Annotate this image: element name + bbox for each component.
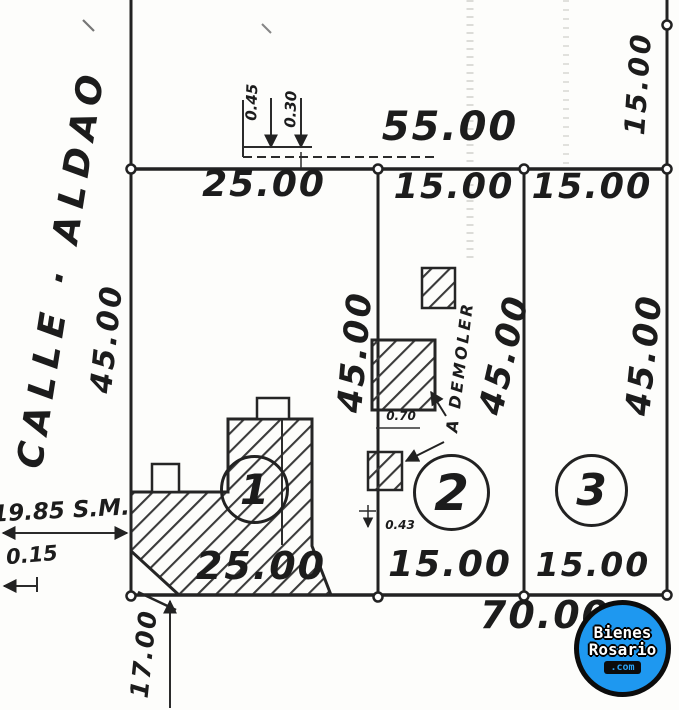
dim-top-offset-b: 0.30	[281, 69, 300, 150]
logo-text-com: .com	[604, 661, 640, 674]
logo-text-line2: Rosario	[589, 641, 656, 658]
dim-lot2-building-offset-b: 0.43	[370, 519, 430, 532]
lot3-number-circle: 3	[555, 454, 628, 527]
dim-top-offset-a: 0.45	[242, 62, 261, 143]
survey-plan-scan: CALLE · ALDAO 55.00 0.45 0.30 25.00 15.0…	[0, 0, 679, 710]
dim-total-front: 55.00	[350, 105, 550, 149]
lot2-number: 2	[434, 464, 469, 522]
bienesrosario-logo: Bienes Rosario .com	[574, 600, 671, 697]
dim-lot3-back: 15.00	[523, 547, 663, 583]
dim-lot2-building-offset-a: 0.70	[371, 410, 431, 423]
dim-lot1-front: 25.00	[179, 165, 349, 205]
dim-lot1-back: 25.00	[171, 546, 351, 588]
dim-lot2-front: 15.00	[379, 168, 529, 207]
dim-lot3-front: 15.00	[517, 168, 667, 207]
lot1-number-circle: 1	[220, 455, 289, 524]
dim-lot2-back: 15.00	[375, 545, 525, 585]
lot2-number-circle: 2	[413, 454, 490, 531]
logo-text-line1: Bienes	[594, 624, 652, 641]
lot3-number: 3	[576, 465, 607, 516]
lot1-number: 1	[240, 465, 269, 514]
